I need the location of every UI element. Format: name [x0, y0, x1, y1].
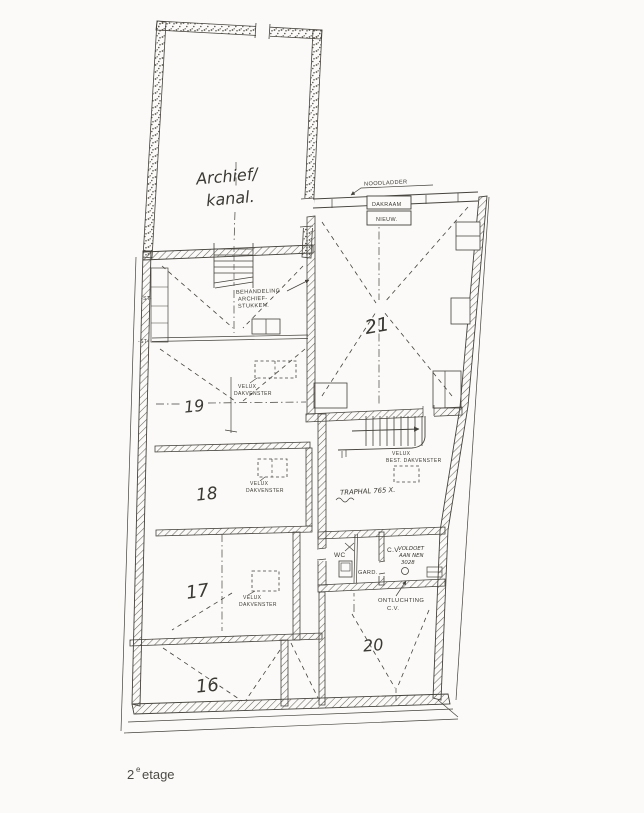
centerline-horizontal	[208, 402, 306, 403]
wall-16-right	[281, 640, 288, 706]
wc-label: WC	[334, 552, 346, 559]
voldoet-note-3: 3028	[401, 560, 415, 566]
floorplan-scan-page: BEHANDELING ARCHIEF- STUKKEN. -ST- -ST- …	[0, 0, 644, 813]
room-19-number: 19	[183, 396, 205, 417]
behandeling-label-2: ARCHIEF-	[238, 296, 268, 303]
velux-label-1: VELUX	[238, 384, 257, 390]
wall-19-18	[155, 442, 310, 452]
behandeling-label-3: STUKKEN.	[238, 303, 269, 310]
archief-annex	[143, 21, 322, 258]
stair-direction-arrow	[352, 429, 419, 431]
roof-hip-dash	[246, 650, 280, 700]
velux-label-1: VELUX	[243, 595, 262, 601]
room-16-number: 16	[195, 674, 220, 697]
velux-label-2: DAKVENSTER	[246, 488, 284, 494]
velux-label-2: DAKVENSTER	[234, 391, 272, 397]
dakraam-label-1: DAKRAAM	[372, 202, 402, 208]
caption-superscript: e	[136, 765, 141, 774]
wall-18-right	[306, 448, 312, 526]
wall-17-right	[293, 532, 300, 640]
velux-roof-window	[255, 361, 296, 378]
hall-19-line2	[152, 339, 308, 342]
room-20-number: 20	[362, 635, 384, 656]
room-21-number: 21	[363, 313, 391, 339]
page-caption: 2 e etage	[127, 765, 175, 782]
room-19-labels: VELUX DAKVENSTER 19	[183, 384, 272, 417]
caption-number: 2	[127, 767, 134, 782]
room-17-number: 17	[185, 580, 211, 604]
cv-flue-symbol	[402, 568, 409, 575]
st-label-1: -ST-	[141, 296, 152, 302]
room-18-labels: VELUX DAKVENSTER 18	[195, 481, 284, 506]
roof-hip-dash	[322, 222, 376, 303]
wall-18-17	[156, 526, 312, 536]
velux-roof-window	[252, 571, 279, 591]
room-16	[163, 643, 318, 701]
roof-hip-dash	[398, 610, 429, 686]
archief-room-label-1: Archief/	[194, 164, 260, 189]
wall-r20-left	[319, 592, 325, 705]
st-label-2: -ST-	[138, 339, 149, 345]
velux-label-1: VELUX	[250, 481, 269, 487]
velux-roof-window	[258, 459, 287, 477]
room-18	[258, 459, 287, 481]
voldoet-note-2: AAN NEN	[398, 553, 424, 559]
right-wall	[433, 196, 487, 700]
wall-gard-cv	[379, 532, 384, 585]
wall-r21-bottom	[306, 407, 462, 422]
room-16-labels: 16	[195, 674, 220, 697]
room-19	[156, 349, 306, 433]
velux-best-label-1: VELUX	[392, 451, 411, 457]
centerline	[234, 212, 235, 243]
hall-19-line	[152, 335, 308, 338]
behandeling-label-1: BEHANDELING	[236, 288, 281, 296]
room-20-labels: 20	[362, 635, 384, 656]
velux-roof-window	[394, 466, 419, 482]
archief-labels: Archief/ kanal.	[194, 164, 260, 210]
caption-word: etage	[142, 767, 175, 782]
velux-label-2: DAKVENSTER	[239, 602, 277, 608]
velux-best-label-2: BEST. DAKVENSTER	[386, 458, 442, 464]
ontluchting-label-1: ONTLUCHTING	[378, 598, 424, 604]
hall-labels: BEHANDELING ARCHIEF- STUKKEN. -ST- -ST-	[138, 288, 281, 345]
traphal-labels: VELUX BEST. DAKVENSTER TRAPHAL 765 X.	[340, 451, 442, 497]
landing-closet-left	[314, 383, 347, 408]
velux-leader	[250, 378, 257, 383]
traphal	[314, 371, 461, 502]
voldoet-note-1: VOLDOET	[398, 546, 425, 552]
left-wall	[132, 251, 151, 706]
roof-hip-dash	[384, 312, 452, 396]
behandeling-leader-arrow	[287, 280, 309, 291]
ontluchting-label-2: C.V.	[387, 606, 399, 612]
hand-squiggle	[336, 498, 354, 502]
wc-fixture-inner	[341, 563, 350, 571]
right-wall-recess2	[451, 298, 470, 324]
door-gap	[423, 405, 434, 417]
top-wall-gap	[256, 22, 270, 38]
archief-room-label-2: kanal.	[205, 187, 255, 210]
archief-top-wall	[156, 21, 322, 39]
stairwell-edge	[338, 416, 425, 450]
traphal-note: TRAPHAL 765 X.	[340, 486, 396, 497]
room-18-number: 18	[195, 484, 219, 506]
gard-label: GARD.	[358, 570, 378, 576]
landing-closet-right	[433, 371, 461, 408]
roof-hip-dash	[291, 643, 318, 698]
floorplan-drawing: BEHANDELING ARCHIEF- STUKKEN. -ST- -ST- …	[0, 0, 644, 813]
door-gap	[316, 548, 328, 561]
eave-line-bottom	[124, 719, 458, 733]
roof-hip-dash	[160, 349, 235, 401]
wc-gard-line	[354, 534, 355, 583]
dakraam-label-2: NIEUW.	[376, 217, 398, 223]
archief-left-wall	[143, 21, 166, 258]
left-closet-column	[151, 268, 168, 342]
